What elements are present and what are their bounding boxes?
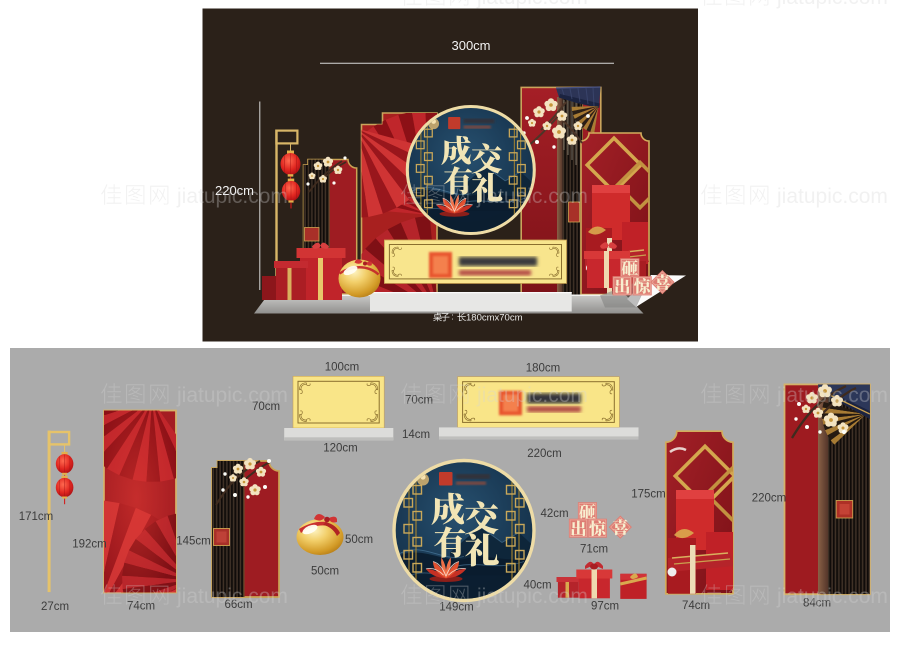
svg-text:50cm: 50cm bbox=[345, 534, 373, 546]
svg-text:300cm: 300cm bbox=[451, 38, 490, 53]
svg-text:27cm: 27cm bbox=[41, 601, 69, 613]
svg-text:175cm: 175cm bbox=[631, 489, 666, 501]
svg-text:120cm: 120cm bbox=[323, 443, 358, 455]
svg-text:50cm: 50cm bbox=[311, 566, 339, 578]
svg-text:42cm: 42cm bbox=[540, 508, 568, 520]
svg-text:71cm: 71cm bbox=[580, 544, 608, 556]
svg-text:180cm: 180cm bbox=[526, 363, 561, 375]
svg-text:220cm: 220cm bbox=[752, 493, 787, 505]
svg-text:180cmx70cm: 180cmx70cm bbox=[466, 313, 523, 324]
svg-text:97cm: 97cm bbox=[591, 601, 619, 613]
svg-text:220cm: 220cm bbox=[527, 448, 562, 460]
svg-text::: : bbox=[451, 312, 454, 322]
svg-text:14cm: 14cm bbox=[402, 429, 430, 441]
svg-text:145cm: 145cm bbox=[176, 536, 211, 548]
svg-text:100cm: 100cm bbox=[325, 362, 360, 374]
svg-text:171cm: 171cm bbox=[19, 511, 54, 523]
svg-text:192cm: 192cm bbox=[72, 539, 107, 551]
svg-text:74cm: 74cm bbox=[682, 600, 710, 612]
